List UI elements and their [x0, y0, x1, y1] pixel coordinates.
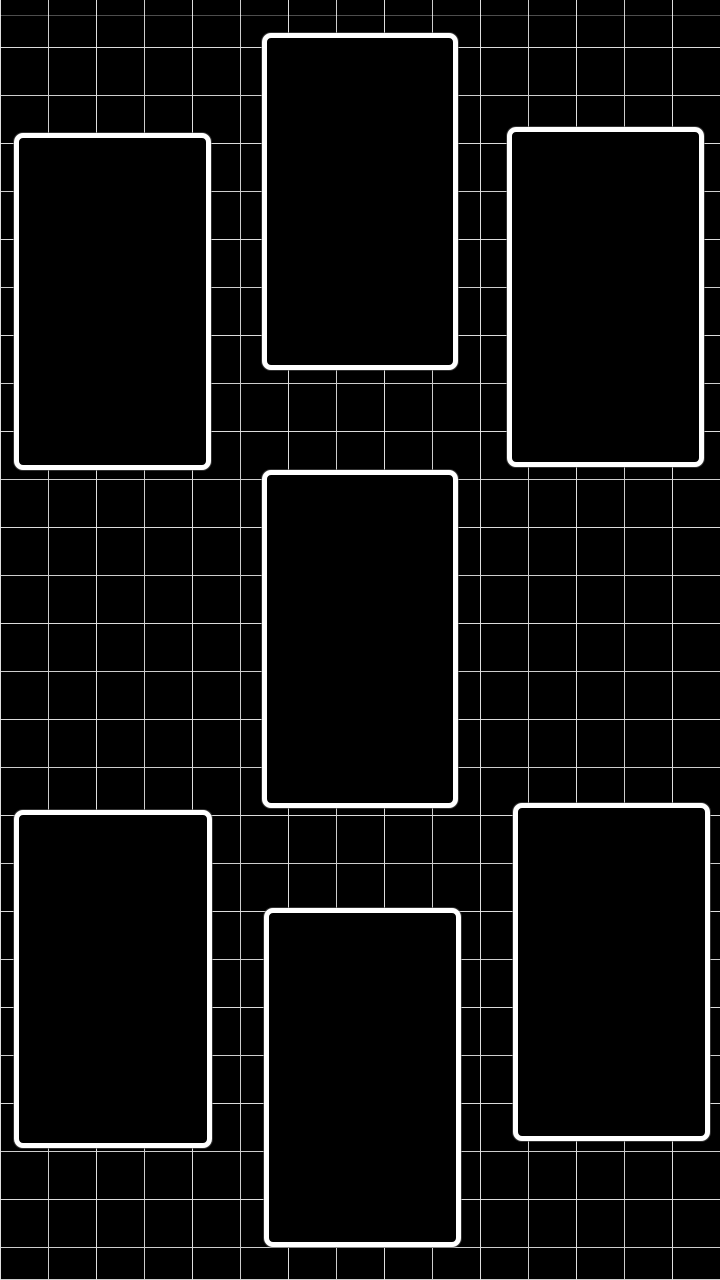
photo-frame-top-left: [14, 133, 211, 470]
photo-frame-top-right: [507, 127, 704, 467]
photo-frame-bottom-right: [513, 803, 710, 1141]
photo-frame-bottom-center: [264, 908, 461, 1247]
photo-frame-middle-center: [262, 470, 458, 808]
grid-wallpaper-canvas: [0, 0, 720, 1280]
photo-frame-top-center: [262, 33, 458, 370]
photo-frame-bottom-left: [14, 810, 212, 1148]
